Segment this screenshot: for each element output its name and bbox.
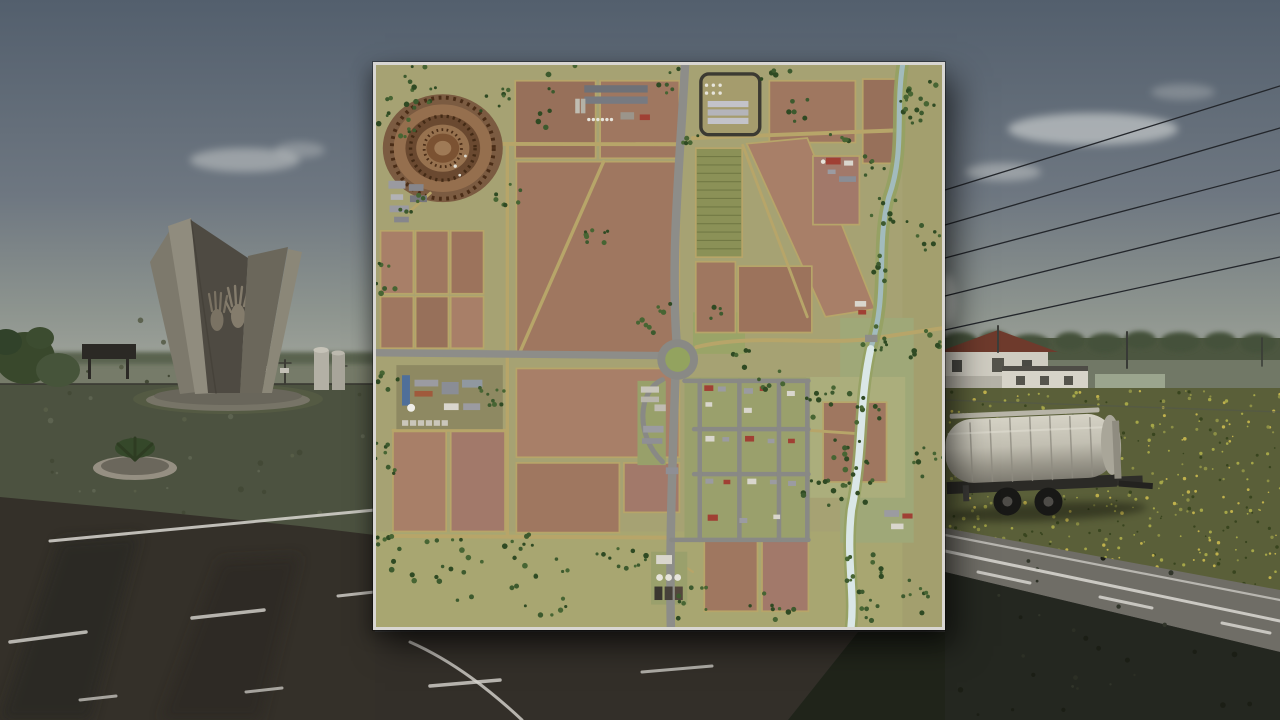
dot xyxy=(879,574,884,579)
dot xyxy=(92,489,96,493)
dot xyxy=(908,579,912,582)
dot xyxy=(919,610,924,615)
dot xyxy=(382,286,387,291)
dot xyxy=(590,228,594,232)
dot xyxy=(1234,520,1237,523)
dot xyxy=(1021,654,1025,658)
dot xyxy=(958,411,960,413)
warehouse xyxy=(642,438,662,444)
dot xyxy=(555,557,559,560)
dot xyxy=(1122,431,1125,434)
dot xyxy=(864,460,868,464)
dot xyxy=(1159,423,1161,425)
dot xyxy=(1256,454,1259,457)
riverside-building xyxy=(884,510,899,517)
dot xyxy=(437,578,443,584)
dot xyxy=(1237,502,1239,504)
dot xyxy=(763,387,768,392)
dot xyxy=(514,584,519,589)
dot xyxy=(617,565,621,569)
feed-silo xyxy=(610,118,613,121)
field xyxy=(416,297,449,349)
town-building xyxy=(705,479,713,484)
dot xyxy=(434,575,438,579)
riverside-building xyxy=(891,524,903,530)
cloud xyxy=(275,142,325,158)
field xyxy=(381,297,414,349)
dot xyxy=(919,223,924,228)
dot xyxy=(1275,545,1279,549)
dot xyxy=(1274,570,1277,573)
dot xyxy=(1151,424,1155,428)
field xyxy=(416,231,449,294)
dot xyxy=(864,173,867,176)
dot xyxy=(411,65,414,68)
dot xyxy=(494,192,498,196)
dot xyxy=(1102,543,1105,546)
dot xyxy=(881,201,885,205)
dot xyxy=(876,262,881,267)
dot xyxy=(561,597,565,601)
dot xyxy=(385,442,390,446)
dot xyxy=(89,396,93,400)
dot xyxy=(519,547,523,551)
dot xyxy=(858,440,861,443)
dot xyxy=(79,490,81,492)
dot xyxy=(1124,437,1126,439)
dot xyxy=(386,465,391,470)
dot xyxy=(747,349,751,353)
dot xyxy=(564,605,567,608)
dot xyxy=(1019,615,1023,619)
dot xyxy=(1027,559,1031,563)
industrial-shed xyxy=(391,194,403,200)
dot xyxy=(411,578,417,584)
dot xyxy=(1096,646,1101,651)
dot xyxy=(531,544,534,547)
dot xyxy=(954,526,957,529)
dot xyxy=(1246,478,1248,480)
dot xyxy=(1079,391,1082,394)
hand-finger xyxy=(215,292,216,310)
farm-shed xyxy=(442,420,448,426)
dot xyxy=(1179,508,1183,512)
dot xyxy=(1157,511,1159,513)
dot xyxy=(842,445,847,450)
dot xyxy=(1220,702,1226,708)
dot xyxy=(389,567,395,573)
dot xyxy=(1139,390,1141,392)
dot xyxy=(392,472,395,475)
dot xyxy=(983,391,987,395)
dot xyxy=(1215,548,1218,551)
dot xyxy=(808,398,811,401)
dot xyxy=(1209,428,1212,431)
dot xyxy=(407,127,411,131)
dot xyxy=(1076,522,1079,525)
dot xyxy=(639,317,644,322)
dot xyxy=(603,231,606,234)
dot xyxy=(950,477,953,480)
dot xyxy=(1134,498,1137,501)
dot xyxy=(842,467,848,473)
dot xyxy=(1084,548,1087,551)
dot xyxy=(376,121,381,127)
dot xyxy=(459,538,463,542)
west-road xyxy=(376,353,661,356)
dot xyxy=(1166,478,1168,480)
dot xyxy=(547,87,550,90)
dot xyxy=(1209,539,1212,542)
dot xyxy=(891,220,895,224)
dot xyxy=(51,471,54,474)
dot xyxy=(1137,440,1139,442)
dot xyxy=(905,98,908,101)
town-building xyxy=(744,388,753,394)
billboard xyxy=(82,344,136,359)
dot xyxy=(502,94,505,97)
dot xyxy=(410,572,415,577)
dot xyxy=(1068,536,1070,538)
dot xyxy=(495,389,498,392)
dot xyxy=(1133,534,1135,536)
dot xyxy=(182,511,186,515)
dot xyxy=(56,472,59,475)
town-building xyxy=(708,515,718,521)
dot xyxy=(1160,517,1162,519)
feed-silo xyxy=(592,118,595,121)
town-building xyxy=(768,439,775,443)
dot xyxy=(1190,394,1192,396)
field xyxy=(515,81,595,159)
dot xyxy=(1266,425,1269,428)
dot xyxy=(1256,521,1259,524)
dot xyxy=(501,87,504,90)
dot xyxy=(924,591,928,595)
dot xyxy=(689,585,694,590)
dot xyxy=(584,230,587,233)
dot xyxy=(709,317,712,320)
dot xyxy=(404,135,407,138)
dot xyxy=(403,75,406,78)
dot xyxy=(546,72,552,78)
dot xyxy=(1163,623,1167,627)
dot xyxy=(1199,552,1201,554)
field xyxy=(451,231,484,294)
dot xyxy=(1222,451,1224,453)
dot xyxy=(1215,552,1218,555)
dot xyxy=(393,468,397,472)
dot xyxy=(1180,535,1182,537)
dot xyxy=(1268,527,1271,530)
town-building xyxy=(770,480,777,484)
dot xyxy=(456,598,460,601)
dot xyxy=(416,200,420,203)
dot xyxy=(1173,563,1175,565)
dot xyxy=(1235,549,1237,551)
dot xyxy=(1148,439,1151,442)
dot xyxy=(1199,456,1202,459)
dot xyxy=(1011,527,1014,530)
dot xyxy=(538,612,543,617)
dot xyxy=(949,525,952,528)
dot xyxy=(636,321,640,325)
dot xyxy=(802,116,807,121)
dot xyxy=(847,481,851,484)
dot xyxy=(704,608,707,611)
dot xyxy=(498,105,501,108)
dot xyxy=(1051,525,1054,528)
dot xyxy=(1226,419,1229,422)
dot xyxy=(469,594,474,599)
dot xyxy=(696,134,699,137)
quarry-machine xyxy=(454,164,457,167)
dot xyxy=(182,417,187,422)
dot xyxy=(878,197,881,200)
dot xyxy=(1148,445,1150,447)
dot xyxy=(1195,428,1198,431)
dot xyxy=(873,404,878,409)
dot xyxy=(1024,534,1027,537)
barn xyxy=(708,109,749,115)
dot xyxy=(1249,509,1252,512)
dot xyxy=(479,109,482,112)
dot xyxy=(1226,464,1229,467)
dot xyxy=(1109,533,1111,535)
dot xyxy=(700,586,704,590)
dot xyxy=(1187,490,1190,493)
barn xyxy=(584,85,647,92)
roundabout-green xyxy=(665,347,690,372)
dot xyxy=(759,77,763,81)
dot xyxy=(602,240,607,245)
dot xyxy=(1185,390,1187,392)
dot xyxy=(1251,512,1253,514)
dot xyxy=(844,137,848,141)
dot xyxy=(1147,451,1150,454)
dot xyxy=(1236,536,1238,538)
dot xyxy=(1224,511,1227,514)
dot xyxy=(601,552,606,557)
dot xyxy=(516,200,520,204)
dot xyxy=(829,133,832,136)
dot xyxy=(894,198,898,202)
dot xyxy=(1222,530,1224,532)
dot xyxy=(1182,563,1185,566)
dot xyxy=(392,286,397,291)
dot xyxy=(1107,549,1109,551)
dot xyxy=(1119,537,1122,540)
farm-track xyxy=(392,536,673,538)
dot xyxy=(1237,559,1239,561)
dot xyxy=(1226,526,1229,529)
field xyxy=(451,431,505,531)
dot xyxy=(823,479,828,484)
dot xyxy=(1105,401,1107,403)
dot xyxy=(806,98,810,102)
dot xyxy=(767,383,772,388)
dot xyxy=(522,563,528,569)
outbuilding-window xyxy=(1064,376,1073,385)
dot xyxy=(1129,390,1132,393)
farm-building xyxy=(414,380,438,387)
dot xyxy=(903,107,908,112)
dot xyxy=(831,455,836,460)
dot xyxy=(856,405,860,409)
feed-silo xyxy=(605,118,608,121)
dot xyxy=(386,387,391,392)
dot xyxy=(1241,413,1243,415)
dot xyxy=(378,374,383,378)
town-building xyxy=(724,480,731,484)
tree-bump xyxy=(1240,333,1276,353)
dot xyxy=(238,486,244,492)
dot xyxy=(1195,475,1198,478)
dot xyxy=(1205,535,1207,537)
biogas-tank xyxy=(665,574,672,581)
dot xyxy=(507,97,510,100)
solar-panel xyxy=(402,375,410,405)
tree-bump xyxy=(1204,332,1236,350)
farm-shed xyxy=(426,420,432,426)
dot xyxy=(522,543,525,546)
dot xyxy=(719,307,722,310)
warehouse xyxy=(641,397,659,403)
dot xyxy=(676,616,681,621)
dot xyxy=(989,405,992,408)
dot xyxy=(1262,501,1264,503)
dot xyxy=(1228,467,1230,469)
dot xyxy=(863,499,868,504)
farm-tank xyxy=(821,159,826,163)
dot xyxy=(997,594,1000,597)
dot xyxy=(1116,604,1120,608)
dot xyxy=(1171,426,1174,429)
dot xyxy=(861,396,865,400)
feed-silo xyxy=(712,84,715,87)
dot xyxy=(547,109,551,113)
outbuilding-window xyxy=(1016,376,1025,385)
dot xyxy=(916,459,921,464)
dot xyxy=(1186,510,1188,512)
dot xyxy=(1016,399,1019,402)
landing-leg xyxy=(963,485,970,501)
dot xyxy=(668,302,672,306)
dot xyxy=(1209,531,1212,534)
dot xyxy=(1272,431,1274,433)
dot xyxy=(676,594,681,599)
dot xyxy=(918,118,922,122)
dot xyxy=(411,84,417,90)
dot xyxy=(665,91,668,94)
dot xyxy=(933,452,937,456)
dot xyxy=(376,542,380,546)
dot xyxy=(883,340,887,344)
dot xyxy=(877,416,881,420)
dot xyxy=(1217,562,1221,566)
dot xyxy=(1183,437,1187,441)
dot xyxy=(1226,442,1229,445)
dot xyxy=(869,618,874,623)
dot xyxy=(681,601,686,606)
dot xyxy=(880,346,883,349)
dot xyxy=(398,133,403,138)
dot xyxy=(435,538,439,542)
dot xyxy=(412,106,416,110)
dot xyxy=(816,480,821,484)
dot xyxy=(1247,426,1249,428)
quarry-floor xyxy=(434,141,451,156)
dot xyxy=(1181,439,1183,441)
dot xyxy=(651,330,656,335)
dot xyxy=(786,109,791,114)
dot xyxy=(1193,650,1197,654)
dot xyxy=(538,111,543,116)
dot xyxy=(870,159,874,163)
building xyxy=(858,310,866,314)
dot xyxy=(864,606,869,611)
dot xyxy=(958,687,963,692)
dot xyxy=(408,79,413,84)
dot xyxy=(502,389,506,392)
dot xyxy=(780,381,785,386)
dot xyxy=(1133,674,1135,676)
farm-tank xyxy=(407,404,415,412)
dot xyxy=(50,459,54,463)
dot xyxy=(1176,503,1178,505)
dot xyxy=(1269,576,1272,579)
map-overlay[interactable] xyxy=(373,62,945,630)
dot xyxy=(973,526,976,529)
dot xyxy=(678,600,682,603)
dot xyxy=(912,461,916,464)
dot xyxy=(771,607,775,611)
industrial-shed xyxy=(388,181,405,189)
dot xyxy=(1117,520,1119,522)
dot xyxy=(258,460,264,466)
dot xyxy=(1116,500,1118,502)
dot xyxy=(762,591,766,595)
field xyxy=(863,79,897,163)
dot xyxy=(669,71,672,74)
dot xyxy=(788,69,793,74)
dot xyxy=(1188,507,1192,511)
silo-top xyxy=(332,351,345,356)
dot xyxy=(1208,537,1210,539)
industrial-shed xyxy=(409,184,424,191)
dot xyxy=(1160,400,1162,402)
dot xyxy=(870,560,875,565)
dot xyxy=(1229,440,1232,443)
town-building xyxy=(718,386,726,391)
dot xyxy=(1181,463,1183,465)
dot xyxy=(518,188,522,192)
dot xyxy=(631,549,636,553)
dot xyxy=(1203,390,1205,392)
dot xyxy=(810,415,815,420)
dot xyxy=(168,375,170,377)
town-building xyxy=(705,436,714,442)
dot xyxy=(1208,398,1211,401)
cloud xyxy=(1151,84,1215,100)
depot xyxy=(666,467,678,474)
dot xyxy=(1144,541,1146,543)
dot xyxy=(1191,495,1194,498)
dot xyxy=(644,558,647,561)
dot xyxy=(656,82,661,87)
dot xyxy=(972,493,974,495)
dot xyxy=(1269,552,1271,554)
